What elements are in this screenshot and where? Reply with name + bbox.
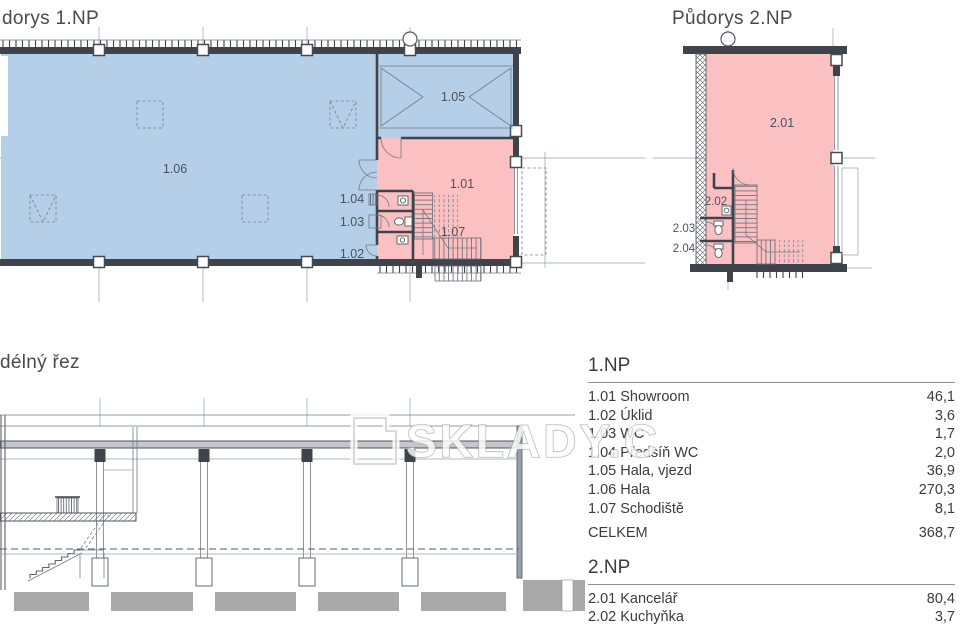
total-area: 368,7: [919, 524, 955, 543]
room-name: 1.05 Hala, vjezd: [588, 462, 692, 481]
room-label-1-03: 1.03: [340, 215, 364, 229]
toilet-icon: [714, 221, 723, 235]
room-area: 36,9: [927, 462, 955, 481]
section-roof: [0, 415, 575, 459]
room-label-1-01: 1.01: [450, 177, 474, 191]
room-label-1-06: 1.06: [163, 162, 187, 176]
floor-plan-1np-drawing: 1.06 1.05 1.01 1.07 1.04 1.03 1.02: [0, 26, 660, 310]
legend-rows-2np: 2.01 Kancelář 80,4 2.02 Kuchyňka 3,7: [588, 590, 955, 627]
legend-row: 2.01 Kancelář 80,4: [588, 590, 955, 609]
legend-row: 1.05 Hala, vjezd 36,9: [588, 462, 955, 481]
room-area: 80,4: [927, 590, 955, 609]
room-area: 270,3: [919, 481, 955, 500]
room-label-2-01: 2.01: [770, 116, 794, 130]
legend-row: 1.06 Hala 270,3: [588, 481, 955, 500]
room-label-2-02: 2.02: [705, 196, 727, 208]
floor-plan-2np-drawing: 2.01 2.02 2.03 2.04: [650, 26, 885, 310]
toilet-icon: [397, 236, 408, 244]
room-label-2-04: 2.04: [673, 243, 696, 255]
room-1-06-hala: [1, 54, 377, 259]
legend-heading-2np: 2.NP: [588, 557, 955, 585]
room-area: 3,7: [935, 608, 955, 627]
section-grid: [100, 398, 410, 426]
room-name: 2.02 Kuchyňka: [588, 608, 684, 627]
total-label: CELKEM: [588, 524, 648, 543]
room-label-1-04: 1.04: [340, 192, 364, 206]
sink-icon: [398, 196, 408, 205]
legend-row: 1.02 Úklid 3,6: [588, 407, 955, 426]
legend-rows-1np: 1.01 Showroom 46,1 1.02 Úklid 3,6 1.03 W…: [588, 388, 955, 543]
toilet-icon: [714, 244, 723, 258]
plan1-ramp-outline: [522, 168, 546, 255]
legend-total-row: CELKEM 368,7: [588, 524, 955, 543]
room-2-01-kancelar: [706, 54, 833, 264]
vent-glyph-icon: [403, 32, 417, 46]
room-name: 1.04 Předsíň WC: [588, 444, 698, 463]
room-name: 1.07 Schodiště: [588, 500, 684, 519]
room-name: 1.03 WC: [588, 425, 644, 444]
area-legend: 1.NP 1.01 Showroom 46,1 1.02 Úklid 3,6 1…: [588, 355, 955, 627]
drawing-sheet: dorys 1.NP Půdorys 2.NP délný řez: [0, 0, 975, 611]
section-ground: [0, 549, 585, 611]
room-area: 46,1: [927, 388, 955, 407]
vent-glyph-icon: [721, 32, 735, 46]
room-label-1-05: 1.05: [441, 90, 465, 104]
room-area: 3,6: [935, 407, 955, 426]
legend-row: 1.07 Schodiště 8,1: [588, 500, 955, 519]
legend-row: 1.01 Showroom 46,1: [588, 388, 955, 407]
room-name: 1.02 Úklid: [588, 407, 652, 426]
room-area: 2,0: [935, 444, 955, 463]
legend-heading-1np: 1.NP: [588, 355, 955, 383]
room-label-1-02: 1.02: [340, 247, 364, 261]
room-name: 1.06 Hala: [588, 481, 650, 500]
room-name: 1.01 Showroom: [588, 388, 690, 407]
legend-row: 1.03 WC 1,7: [588, 425, 955, 444]
room-area: 1,7: [935, 425, 955, 444]
legend-row: 1.04 Předsíň WC 2,0: [588, 444, 955, 463]
section-drawing: [0, 392, 600, 611]
legend-row: 2.02 Kuchyňka 3,7: [588, 608, 955, 627]
room-name: 2.01 Kancelář: [588, 590, 677, 609]
room-area: 8,1: [935, 500, 955, 519]
section-title: délný řez: [0, 352, 80, 374]
room-label-1-07: 1.07: [441, 225, 465, 239]
room-label-2-03: 2.03: [673, 223, 695, 235]
